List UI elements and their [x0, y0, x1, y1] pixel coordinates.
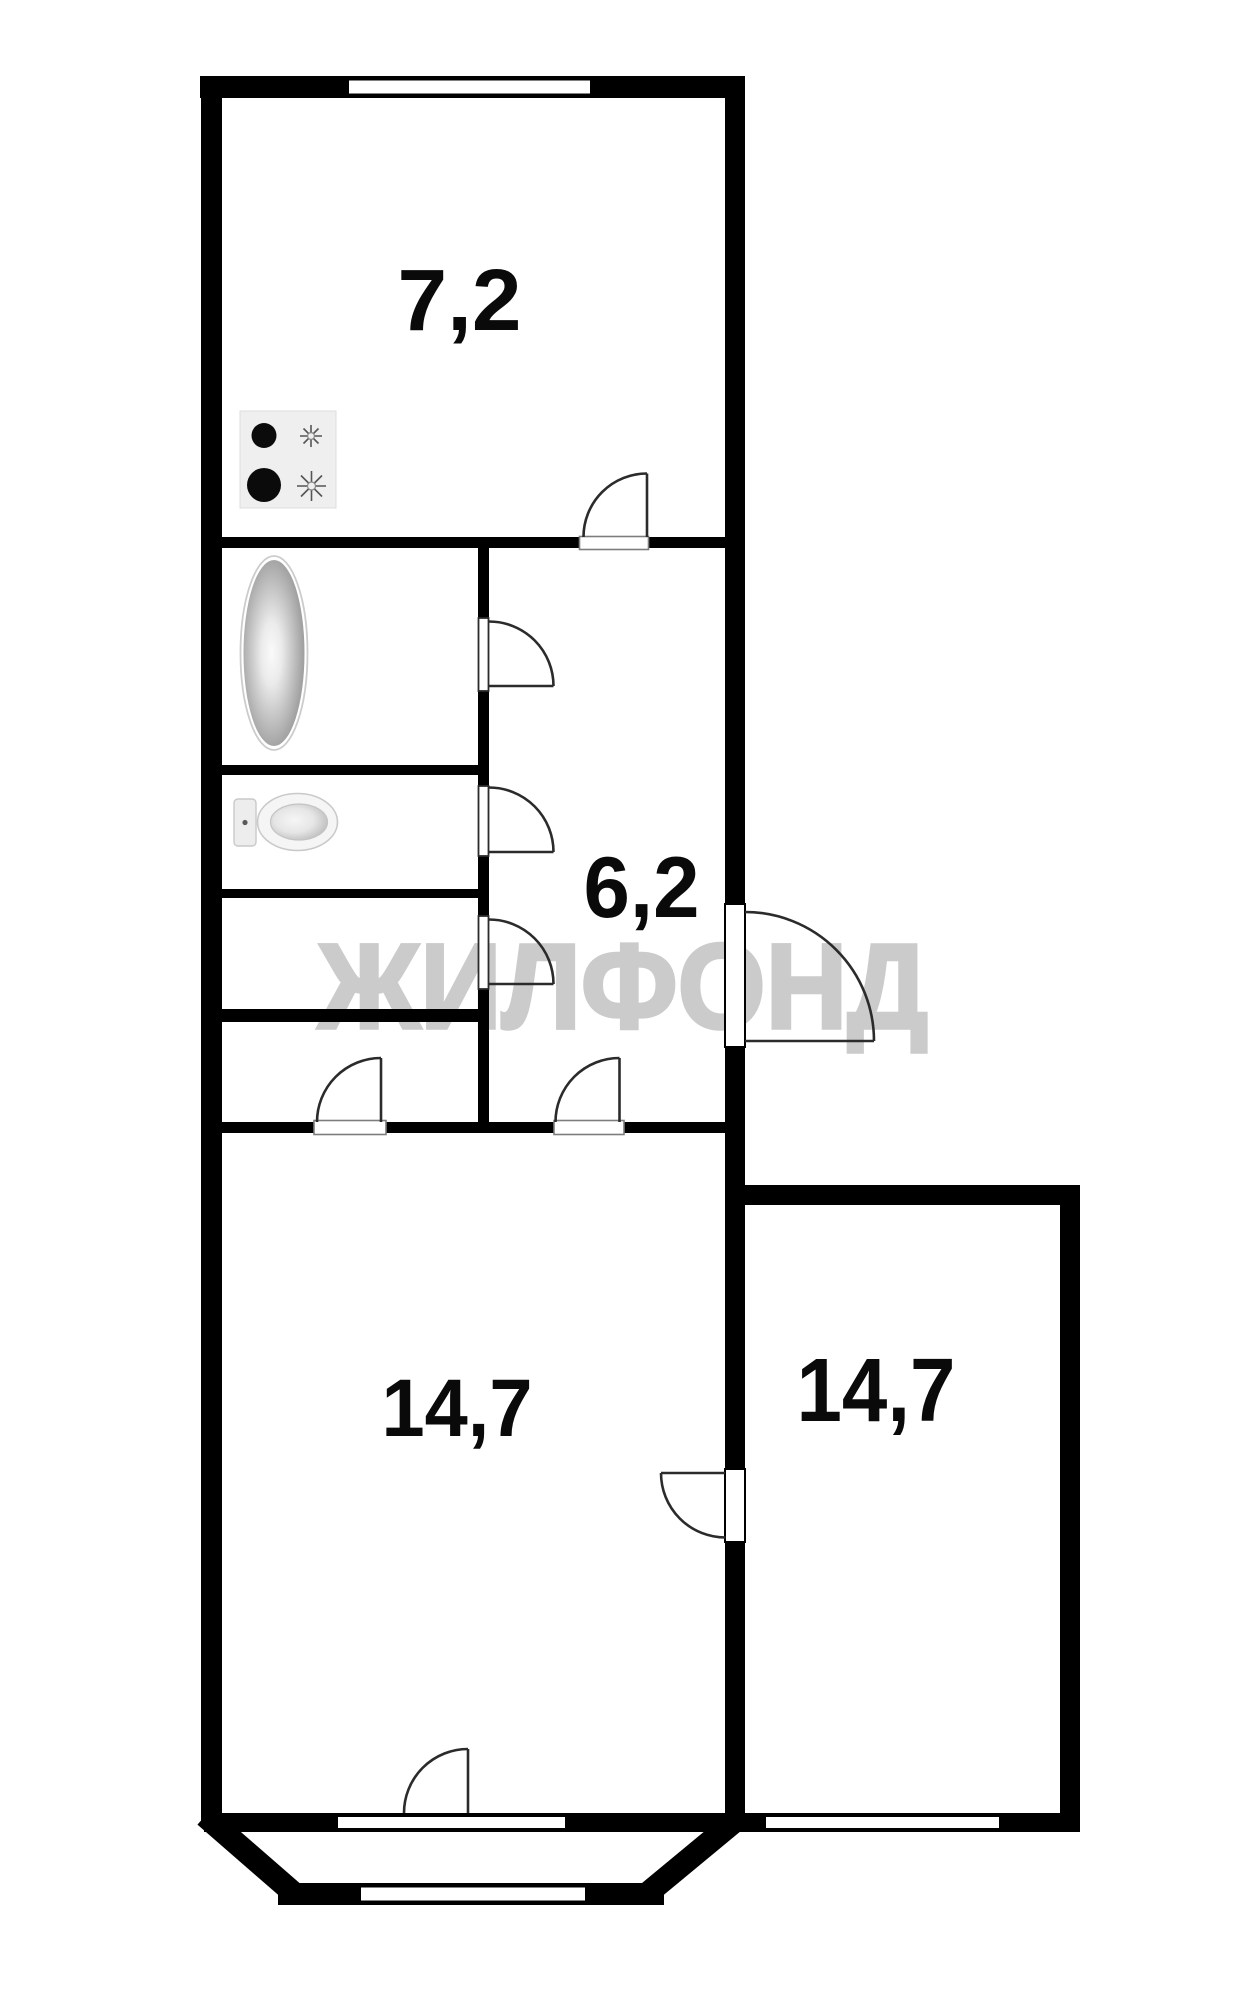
svg-text:6,2: 6,2 [584, 840, 700, 936]
svg-text:14,7: 14,7 [797, 1341, 956, 1441]
svg-text:7,2: 7,2 [398, 252, 522, 349]
svg-text:ЖИЛФОНД: ЖИЛФОНД [317, 918, 928, 1054]
svg-text:14,7: 14,7 [382, 1363, 533, 1454]
